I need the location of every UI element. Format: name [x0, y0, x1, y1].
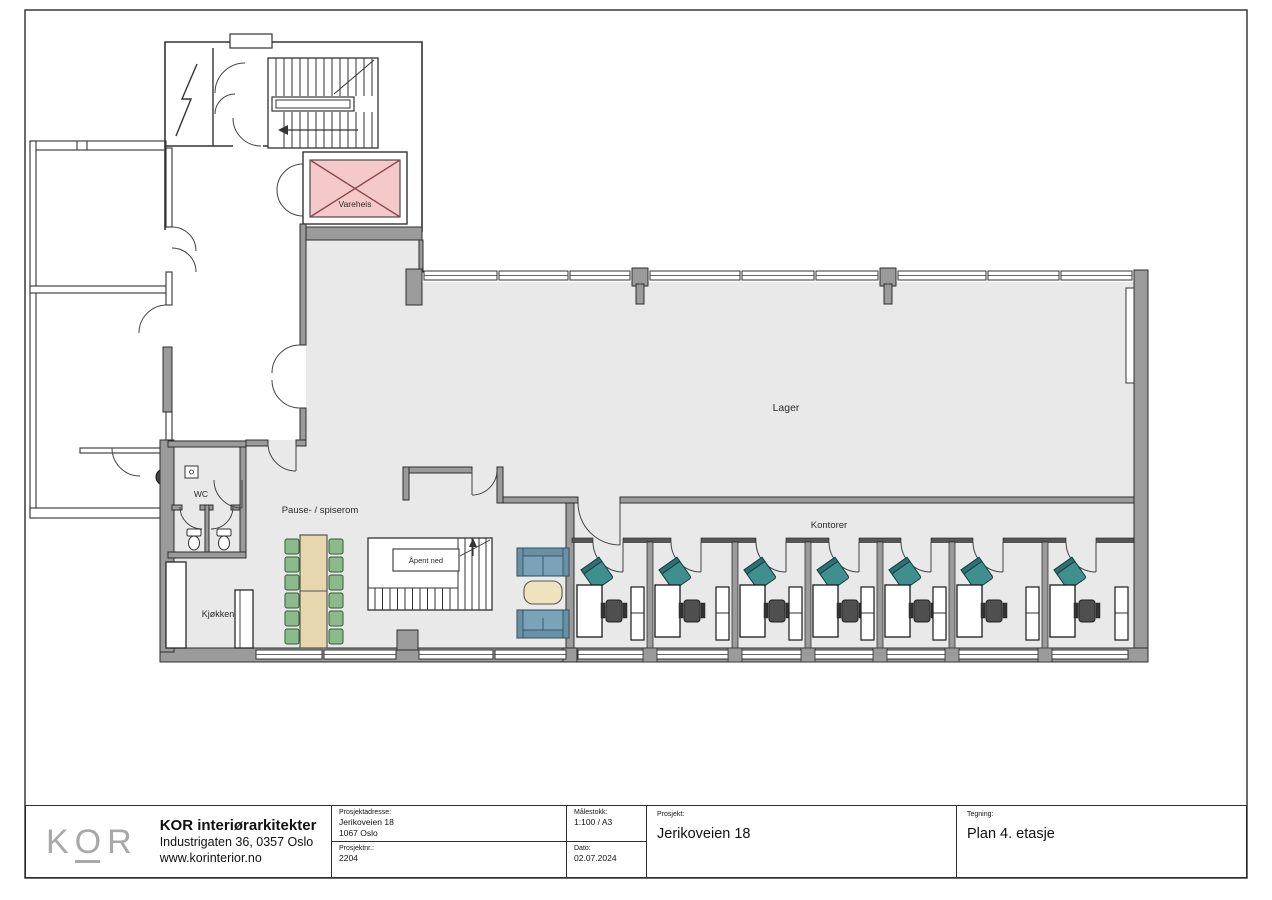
- east-wall-lining: [1126, 288, 1134, 383]
- dining-chair: [285, 593, 299, 608]
- toilet: [217, 529, 231, 550]
- sink: [185, 466, 198, 478]
- office-desk: [813, 585, 838, 637]
- office-separator-wall: [732, 542, 738, 649]
- office-desk: [740, 585, 765, 637]
- project-label: Prosjekt:: [657, 811, 946, 819]
- office-front-wall: [701, 538, 756, 543]
- toilet: [187, 529, 201, 550]
- kitchen-counter: [235, 590, 253, 648]
- dining-chair: [285, 611, 299, 626]
- office-cabinet: [716, 587, 729, 640]
- dining-chair: [329, 575, 343, 590]
- logo-underline: [75, 860, 100, 863]
- office-front-wall: [572, 538, 593, 543]
- wall-pier: [1038, 648, 1052, 662]
- company-name: KOR interiørarkitekter: [160, 817, 317, 836]
- office-front-wall: [1096, 538, 1134, 543]
- office-desk: [1050, 585, 1075, 637]
- office-cabinet: [933, 587, 946, 640]
- corridor-double-door: [172, 227, 196, 272]
- dining-chair: [329, 629, 343, 644]
- office-separator-wall: [647, 542, 653, 649]
- neighbor-walls: [30, 141, 172, 518]
- office-desk: [885, 585, 910, 637]
- scale-value: 1:100 / A3: [574, 817, 639, 828]
- wall-pier: [945, 648, 959, 662]
- project-cell: Prosjekt: Jerikoveien 18: [646, 806, 956, 877]
- office-desk: [577, 585, 602, 637]
- dining-chair: [329, 593, 343, 608]
- company-website: www.korinterior.no: [160, 851, 317, 867]
- project-address-label: Prosjektadresse:: [339, 809, 559, 817]
- office-separator-wall: [949, 542, 955, 649]
- project-value: Jerikoveien 18: [657, 826, 946, 842]
- office-separator-wall: [877, 542, 883, 649]
- dining-chair: [285, 575, 299, 590]
- dining-chair: [285, 629, 299, 644]
- dining-chair: [329, 557, 343, 572]
- lager-label: Lager: [773, 402, 800, 414]
- neighbor-door-arc: [139, 305, 167, 333]
- shaft-notch: [230, 34, 272, 48]
- office-desk: [957, 585, 982, 637]
- goods-elevator: [277, 152, 407, 224]
- open-stair-down: Åpent ned: [368, 538, 492, 610]
- dining-chair: [285, 557, 299, 572]
- dining-chair: [285, 539, 299, 554]
- scale-date-cell: Målestokk: 1:100 / A3 Dato: 02.07.2024: [566, 806, 646, 877]
- elevator-doors: [277, 164, 303, 216]
- kitchen-counter: [166, 562, 186, 648]
- sofa: [517, 610, 569, 638]
- vestibule-doors: [215, 63, 261, 146]
- office-front-wall: [1003, 538, 1066, 543]
- wall-pier: [728, 648, 742, 662]
- pause-label: Pause- / spiserom: [282, 505, 359, 516]
- wall-pier: [643, 648, 657, 662]
- scale-label: Målestokk:: [574, 809, 639, 817]
- wall-pier: [873, 648, 887, 662]
- sofa: [517, 548, 569, 576]
- kontorer-label: Kontorer: [811, 520, 847, 531]
- logo-text: KOR: [46, 823, 138, 861]
- drawing-label: Tegning:: [967, 811, 1236, 819]
- office-desk: [655, 585, 680, 637]
- apent-ned-label: Åpent ned: [409, 556, 443, 565]
- date-value: 02.07.2024: [574, 853, 639, 864]
- dining-chair: [329, 539, 343, 554]
- company-address: Industrigaten 36, 0357 Oslo: [160, 835, 317, 851]
- project-number-value: 2204: [339, 853, 559, 864]
- lounge-group: [517, 548, 569, 638]
- office-cabinet: [789, 587, 802, 640]
- dining-chair: [329, 611, 343, 626]
- party-wall-segment: [163, 347, 172, 412]
- title-block: KOR KOR interiørarkitekter Industrigaten…: [25, 805, 1247, 878]
- company-cell: KOR KOR interiørarkitekter Industrigaten…: [26, 806, 331, 877]
- coffee-table: [524, 581, 562, 604]
- stair-direction-symbol: [176, 64, 197, 136]
- office-cabinet: [1115, 587, 1128, 640]
- project-address-cell: Prosjektadresse: Jerikoveien 18 1067 Osl…: [331, 806, 566, 877]
- vareheis-label: Vareheis: [339, 199, 372, 209]
- office-cabinet: [1026, 587, 1039, 640]
- project-number-label: Prosjektnr.:: [339, 845, 559, 853]
- office-cabinet: [631, 587, 644, 640]
- office-separator-wall: [1042, 542, 1048, 649]
- kjokken-label: Kjøkken: [202, 609, 235, 619]
- drawing-value: Plan 4. etasje: [967, 826, 1236, 842]
- wall-pier: [801, 648, 815, 662]
- drawing-cell: Tegning: Plan 4. etasje: [956, 806, 1246, 877]
- project-address-line2: 1067 Oslo: [339, 828, 559, 839]
- office-cabinet: [861, 587, 874, 640]
- office-separator-wall: [805, 542, 811, 649]
- drawing-page: Åpent ned Vareheis Lager Kontorer Pause-…: [0, 0, 1272, 900]
- date-label: Dato:: [574, 845, 639, 853]
- kor-logo: KOR: [46, 825, 138, 859]
- floor-plan: Åpent ned Vareheis Lager Kontorer Pause-…: [0, 0, 1272, 900]
- project-address-line1: Jerikoveien 18: [339, 817, 559, 828]
- wc-label: WC: [194, 489, 208, 499]
